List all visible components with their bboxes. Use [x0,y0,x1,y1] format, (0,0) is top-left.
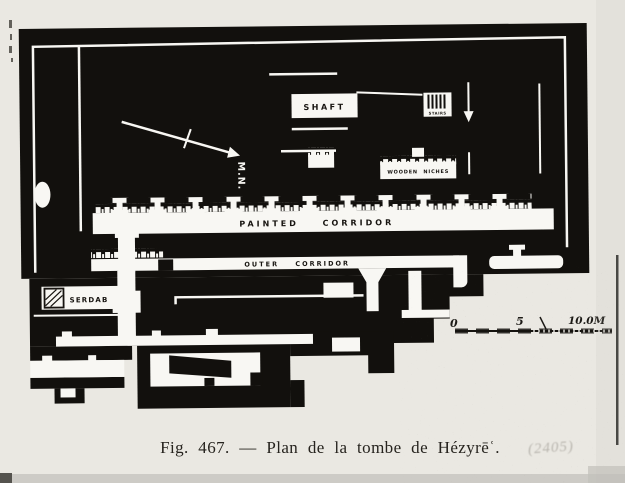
handwritten-note: (2405) [527,438,574,458]
tomb-plan-figure: SHAFT STAIRS WOODEN NICHES PAINTED CORRI… [0,0,625,483]
scanned-book-page: SHAFT STAIRS WOODEN NICHES PAINTED CORRI… [0,0,625,483]
figure-caption: Fig. 467. — Plan de la tombe de Hézyrēʿ. [118,438,542,458]
